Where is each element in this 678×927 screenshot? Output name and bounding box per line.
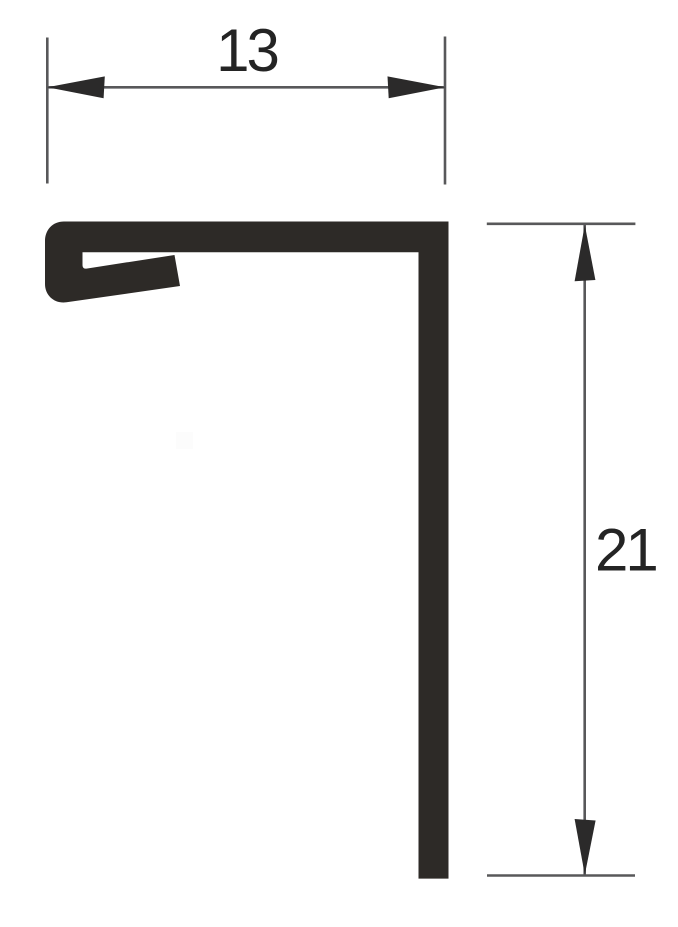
svg-text:21: 21 <box>595 517 656 584</box>
svg-text:13: 13 <box>216 17 277 84</box>
